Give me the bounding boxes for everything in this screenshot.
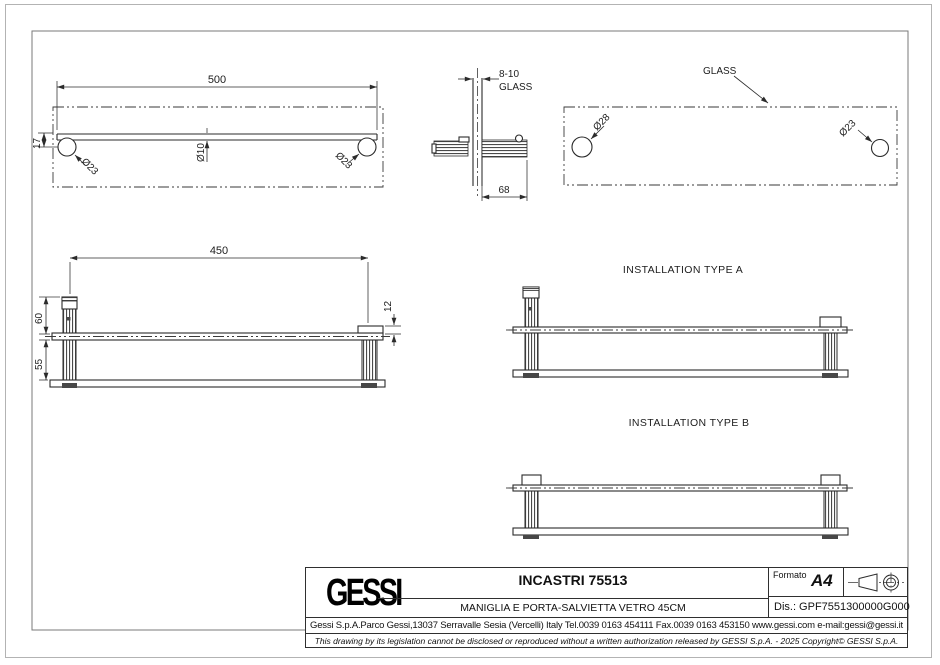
towel-bar: [50, 380, 385, 387]
product-description: MANIGLIA E PORTA-SALVIETTA VETRO 45CM: [378, 602, 768, 614]
dia-23-right-label: Ø23: [333, 150, 354, 171]
title-divider: [378, 598, 768, 599]
right-post: [824, 333, 837, 370]
mount-hole-left: [58, 138, 76, 156]
glass-label: GLASS: [703, 66, 737, 77]
glass-hole-large: [572, 137, 592, 157]
left-post-cap: [522, 475, 541, 485]
side-view: 8-10 GLASS 68: [432, 68, 533, 201]
legal-notice: This drawing by its legislation cannot b…: [306, 633, 907, 649]
wall-bracket: [434, 141, 468, 156]
right-post: [824, 491, 837, 528]
dia-10-label: Ø10: [196, 143, 207, 162]
company-info: Gessi S.p.A.Parco Gessi,13037 Serravalle…: [306, 617, 907, 634]
mount-hole-right: [358, 138, 376, 156]
front-view: 450 60 55 12: [34, 245, 401, 388]
installation-a-title: INSTALLATION TYPE A: [623, 264, 743, 276]
format-value: A4: [811, 571, 833, 591]
right-post-cap: [820, 317, 841, 327]
dia-23-glass-label: Ø23: [837, 118, 858, 139]
right-post-cap: [821, 475, 840, 485]
dim-500-label: 500: [208, 74, 226, 86]
dia-23-left-label: Ø23: [79, 156, 100, 177]
dim-60-label: 60: [34, 312, 45, 324]
glass-panel-view: GLASS Ø28 Ø23: [564, 66, 897, 185]
glass-hole-small: [872, 140, 889, 157]
dim-17-label: 17: [32, 137, 43, 149]
left-post: [525, 491, 538, 528]
dim-8-10-label: 8-10: [499, 69, 519, 80]
top-view: 500 17 Ø23 Ø10 Ø23: [32, 74, 383, 187]
towel-bar: [513, 370, 848, 377]
installation-b-title: INSTALLATION TYPE B: [629, 417, 750, 429]
product-code: INCASTRI 75513: [378, 572, 768, 588]
dim-12-label: 12: [383, 300, 394, 312]
drawing-number: Dis.: GPF7551300000G000: [769, 597, 908, 617]
towel-bar: [513, 528, 848, 535]
glass-panel-phantom: [564, 107, 897, 185]
format-cell: Formato A4: [769, 568, 844, 597]
title-block: GESSI INCASTRI 75513 MANIGLIA E PORTA-SA…: [305, 567, 908, 648]
glass-label-side: GLASS: [499, 82, 533, 93]
right-post: [362, 334, 377, 380]
installation-a-view: INSTALLATION TYPE A: [506, 264, 856, 378]
drawing-sheet: 500 17 Ø23 Ø10 Ø23 8-10 GLASS: [0, 0, 940, 665]
dia-28-label: Ø28: [591, 112, 612, 133]
glass-outline-phantom: [53, 107, 383, 187]
dim-55-label: 55: [34, 358, 45, 370]
technical-drawing-canvas: 500 17 Ø23 Ø10 Ø23 8-10 GLASS: [0, 0, 940, 665]
dim-450-label: 450: [210, 245, 228, 257]
support-arm: [482, 140, 527, 157]
format-label: Formato: [773, 570, 807, 580]
projection-symbol-cell: [844, 568, 907, 597]
arm-screw: [516, 135, 523, 142]
first-angle-projection-icon: [847, 570, 905, 595]
dim-68-label: 68: [498, 185, 510, 196]
installation-b-view: INSTALLATION TYPE B: [506, 417, 856, 539]
right-post-cap: [358, 326, 383, 333]
